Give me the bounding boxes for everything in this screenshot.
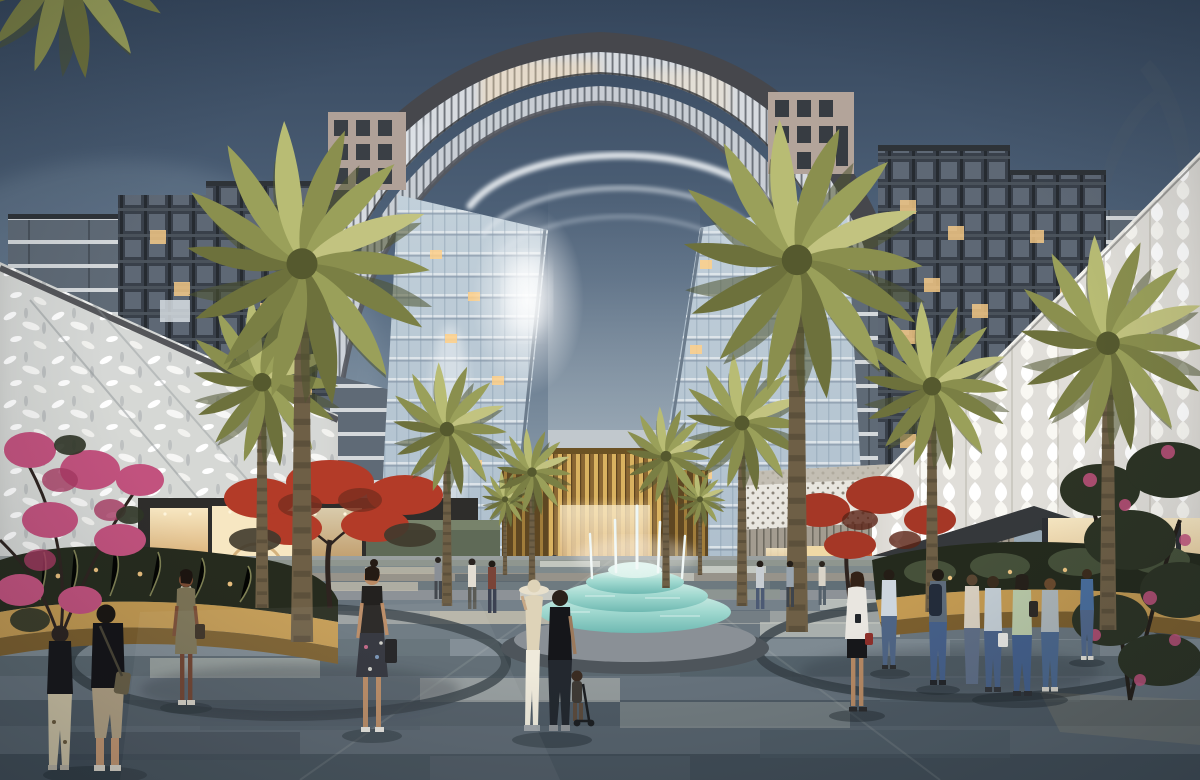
light-overlays: [0, 0, 1200, 780]
scene-canvas: [0, 0, 1200, 780]
architectural-rendering: [0, 0, 1200, 780]
